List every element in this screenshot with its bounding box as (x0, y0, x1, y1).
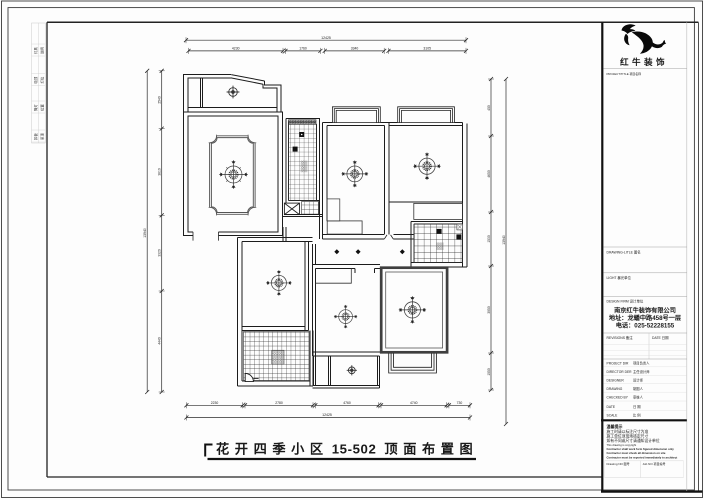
svg-text:温馨提示: 温馨提示 (607, 423, 623, 429)
svg-text:12425: 12425 (322, 413, 332, 417)
svg-text:4440: 4440 (158, 337, 162, 345)
svg-text:3340: 3340 (351, 47, 359, 51)
svg-text:4760: 4760 (343, 401, 351, 405)
svg-text:Drawing NO 图号: Drawing NO 图号 (607, 461, 630, 466)
svg-text:12425: 12425 (321, 36, 331, 40)
svg-text:南京红牛装饰有限公司: 南京红牛装饰有限公司 (614, 307, 676, 315)
svg-text:DRAWING-LITLE 图名: DRAWING-LITLE 图名 (607, 250, 641, 255)
svg-text:REVISIONS 备注: REVISIONS 备注 (607, 335, 634, 340)
svg-text:3810: 3810 (158, 168, 162, 176)
svg-text:1530: 1530 (487, 235, 491, 243)
svg-text:地址：龙蟠中路458号一层: 地址：龙蟠中路458号一层 (609, 314, 681, 322)
svg-text:灯位: 灯位 (39, 76, 44, 83)
svg-text:比 例: 比 例 (633, 412, 641, 417)
svg-text:3320: 3320 (158, 249, 162, 257)
svg-text:扣板: 扣板 (33, 133, 38, 140)
svg-text:DATE 日期: DATE 日期 (652, 335, 669, 340)
svg-text:450: 450 (487, 105, 491, 111)
svg-text:DIRECTOR DER: DIRECTOR DER (607, 370, 633, 374)
svg-text:13940: 13940 (143, 228, 147, 238)
svg-text:施工时请以标注尺寸为准: 施工时请以标注尺寸为准 (607, 429, 649, 434)
svg-text:项目负责人: 项目负责人 (633, 361, 650, 366)
svg-text:PROJECT/TITLE 项目名称: PROJECT/TITLE 项目名称 (607, 71, 642, 76)
svg-text:审核人: 审核人 (633, 394, 644, 399)
svg-text:施工单位须现场核定尺寸: 施工单位须现场核定尺寸 (607, 434, 649, 439)
svg-text:730: 730 (457, 401, 463, 405)
svg-text:花开四季小区15-502顶面布置图: 花开四季小区15-502顶面布置图 (216, 441, 478, 457)
svg-text:2540: 2540 (158, 96, 162, 104)
svg-text:DATE: DATE (607, 405, 616, 409)
svg-text:2230: 2230 (211, 401, 219, 405)
svg-text:DESIGNER: DESIGNER (607, 378, 625, 382)
svg-text:DRAWING: DRAWING (607, 387, 623, 391)
svg-text:吸顶: 吸顶 (34, 76, 38, 83)
svg-text:筒灯: 筒灯 (33, 104, 38, 111)
svg-text:电话：025-52228155: 电话：025-52228155 (616, 322, 675, 330)
svg-text:Job NO 项目编号: Job NO 项目编号 (643, 461, 666, 466)
svg-text:红牛装饰: 红牛装饰 (620, 56, 668, 67)
svg-text:制图人: 制图人 (633, 386, 644, 391)
svg-text:日 期: 日 期 (633, 404, 641, 409)
svg-text:3105: 3105 (423, 47, 431, 51)
svg-text:灯具: 灯具 (33, 47, 38, 54)
svg-text:2780: 2780 (275, 401, 283, 405)
svg-text:如有不同或尺寸请通知设计单位: 如有不同或尺寸请通知设计单位 (607, 438, 660, 443)
svg-text:说明: 说明 (39, 47, 44, 54)
svg-text:Contractor must be reported im: Contractor must be reported immediately … (607, 455, 678, 459)
svg-text:主任设计师: 主任设计师 (633, 369, 650, 374)
svg-text:3950: 3950 (487, 306, 491, 314)
svg-text:4740: 4740 (410, 401, 418, 405)
svg-text:4230: 4230 (232, 47, 240, 51)
svg-text:吊顶: 吊顶 (40, 133, 44, 140)
svg-text:SCALE: SCALE (607, 413, 619, 417)
svg-text:设计师: 设计师 (633, 377, 644, 382)
svg-text:DESIGN FIRM 设计单位: DESIGN FIRM 设计单位 (607, 299, 644, 304)
svg-text:PROJECT DIR: PROJECT DIR (607, 362, 630, 366)
svg-text:CHECKED BY: CHECKED BY (607, 395, 629, 399)
svg-text:位置: 位置 (39, 104, 44, 111)
svg-text:13940: 13940 (502, 235, 506, 245)
svg-text:4650: 4650 (487, 170, 491, 178)
svg-text:LIGHT 暴光单位: LIGHT 暴光单位 (607, 275, 632, 280)
svg-text:1760: 1760 (299, 47, 307, 51)
svg-text:1050: 1050 (487, 368, 491, 376)
